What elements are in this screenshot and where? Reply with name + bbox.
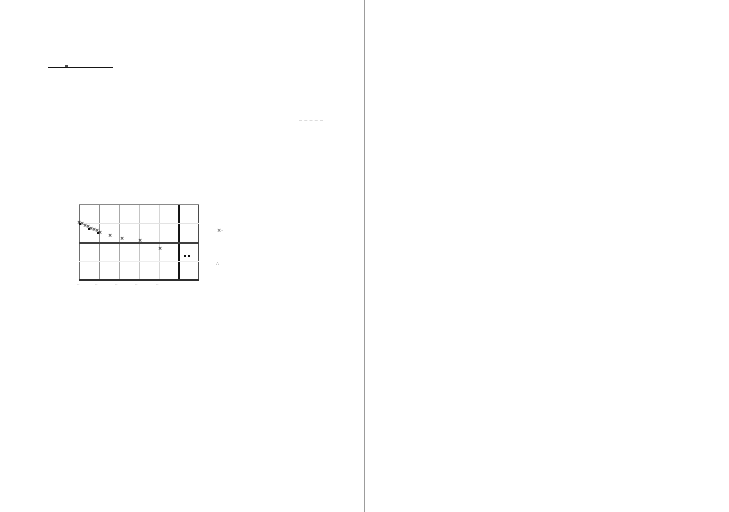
x-axis-tick-label: ·· [135,283,138,287]
document-canvas: ××××××××××××··········×·∴ ××××××××××××ʹ∴ [0,0,729,512]
page-2: ××××××××××××ʹ∴ [365,0,729,512]
faint-artifact-line [299,120,323,121]
title-rule-1 [48,67,113,68]
rule-mark-icon [65,65,68,67]
x-axis-tick-label: ·· [156,283,159,287]
legend-entry: ×· [217,229,223,234]
x-axis-tick-label: ·· [115,283,118,287]
square-marker-icon [88,228,90,230]
x-marker-icon: × [108,234,112,239]
square-marker-icon [97,232,99,234]
x-marker-icon: × [138,239,142,244]
horizontal-gridline [79,279,199,281]
figure-1-scatter-plot: ××××××××××××··········×·∴ [79,204,199,280]
horizontal-gridline [79,204,199,205]
x-marker-icon: × [120,237,124,242]
x-axis-tick-label: ·· [95,283,98,287]
square-marker-icon [188,255,190,257]
legend-entry: ∴ [216,262,219,267]
square-marker-icon [79,223,81,225]
page-1: ××××××××××××··········×·∴ [0,0,364,512]
x-marker-icon: × [158,247,162,252]
square-marker-icon [184,255,186,257]
horizontal-gridline [79,261,199,262]
horizontal-gridline [79,223,199,224]
x-axis-tick-label: ·· [77,283,80,287]
